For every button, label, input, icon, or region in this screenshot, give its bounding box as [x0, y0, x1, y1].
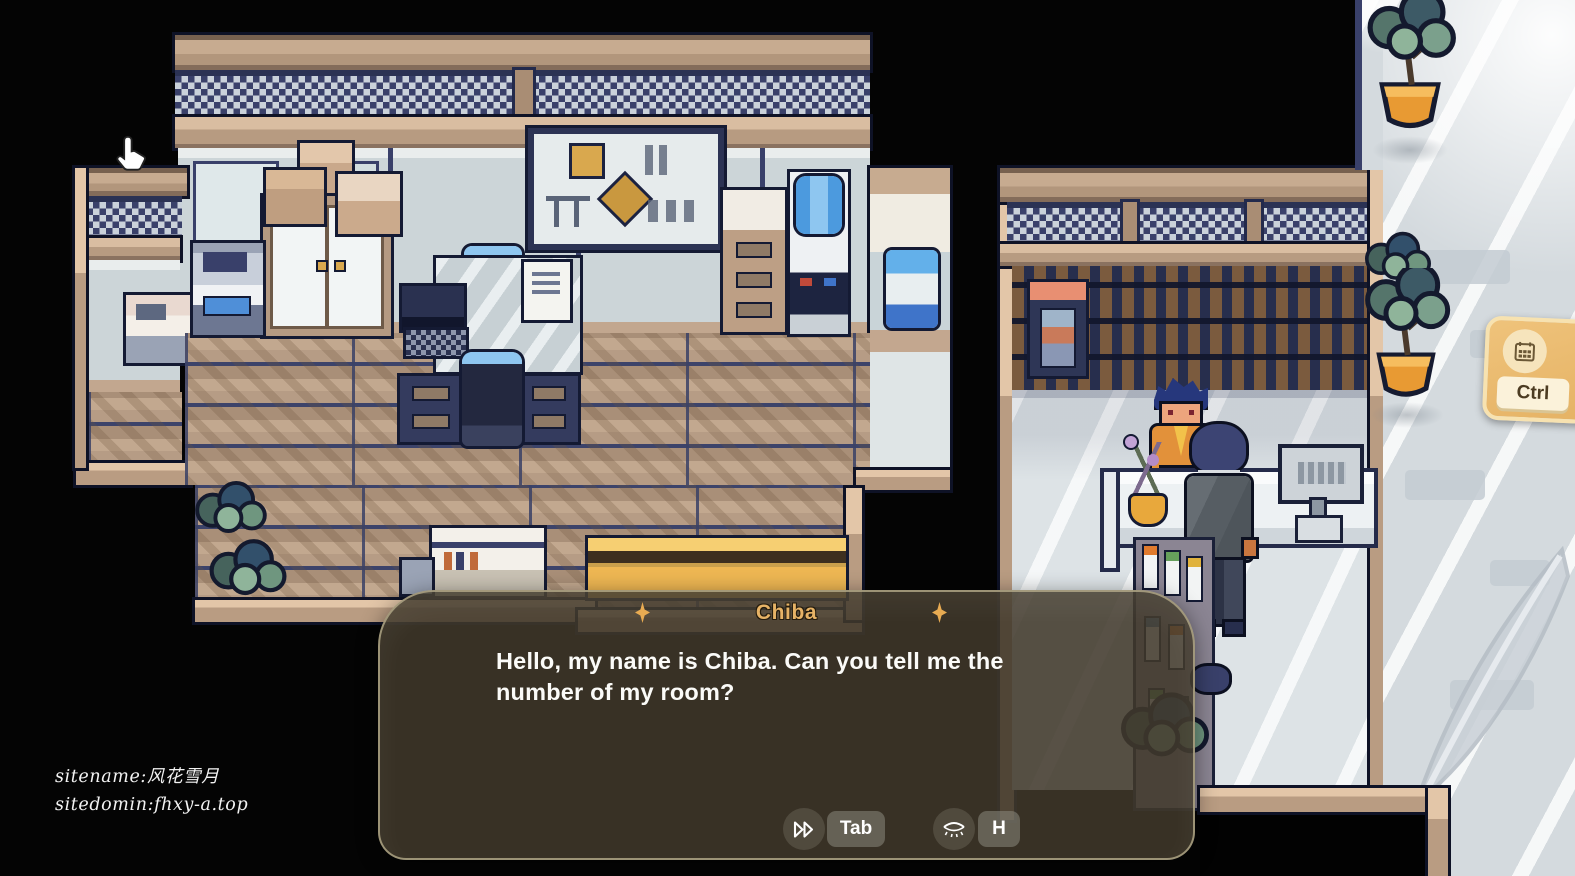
eye-closed-icon [941, 819, 967, 839]
skip-key-label: Tab [840, 818, 872, 840]
cooler-button-blue [824, 278, 836, 286]
office-top-beam [175, 35, 870, 70]
hide-key-label: H [992, 818, 1006, 840]
dialogue-text: Hello, my name is Chiba. Can you tell me… [496, 646, 1056, 708]
courtyard-plant [1358, 0, 1462, 134]
transom-post [1123, 202, 1137, 244]
hotkey-card[interactable]: Ctrl [1482, 315, 1575, 424]
calendar-icon [1502, 328, 1548, 374]
plant-reflection [1370, 402, 1444, 428]
drawer-handle [738, 304, 770, 316]
bottle [1166, 552, 1179, 594]
annex-left-edge [75, 168, 86, 468]
whiteboard-gold-square [572, 146, 602, 176]
drawer-handle [414, 416, 448, 427]
office-right-wall [870, 168, 950, 488]
courtyard-wall-band-vert [1428, 788, 1448, 876]
ctrl-key-label: Ctrl [1516, 382, 1550, 405]
annex-lintel [80, 238, 180, 260]
office-room [0, 0, 960, 660]
fax-screen [136, 304, 166, 320]
cardboard-box [338, 174, 400, 234]
hide-ui-button[interactable] [933, 808, 975, 850]
sideboard-books [444, 552, 484, 570]
annex-floor [88, 392, 182, 463]
water-bottle [796, 176, 842, 234]
skip-button[interactable] [783, 808, 825, 850]
office-plant [206, 528, 290, 602]
skip-key-button[interactable]: Tab [827, 811, 885, 847]
drawer-handle [738, 274, 770, 286]
flower-blossom [1125, 436, 1137, 448]
watermark-sitename: sitename:风花雪月 [55, 763, 219, 788]
annex-floor-edge [76, 463, 190, 485]
receptionist-eyes [1168, 410, 1194, 415]
courtyard-void [1200, 812, 1432, 876]
whiteboard-torii-doodle [546, 196, 590, 227]
floor-edge-right [856, 470, 950, 490]
copier-tray [205, 298, 249, 314]
blue-bin [886, 250, 938, 328]
floor-box [402, 560, 432, 594]
guest-hair [1192, 424, 1246, 472]
laptop [402, 286, 464, 330]
dialogue-box[interactable]: Chiba Hello, my name is Chiba. Can you t… [378, 590, 1195, 860]
whiteboard-doodles [645, 145, 697, 175]
flower-vase [1131, 496, 1165, 524]
counter-left-face [1104, 472, 1116, 568]
game-viewport[interactable]: Ctrl Chiba Hello, my name is Chiba. Can … [0, 0, 1575, 876]
speaker-name-row: Chiba [380, 600, 1193, 626]
annex-beam [75, 168, 187, 196]
register-base [1298, 518, 1340, 540]
drawer-handle [414, 388, 448, 399]
cabinet-handle [318, 262, 326, 270]
marble-leaf-ornament [1392, 540, 1572, 820]
desk-papers-lines [532, 272, 560, 294]
courtyard-wall-band [1200, 788, 1446, 812]
cooler-button-red [800, 278, 812, 286]
hand-pointer-cursor [116, 134, 150, 172]
receptionist-face [1162, 404, 1200, 426]
fast-forward-icon [792, 820, 816, 839]
office-lintel-beam [175, 117, 870, 148]
register-display [1298, 462, 1346, 484]
whiteboard-doodles [648, 200, 698, 222]
bottle [1144, 546, 1157, 588]
drawer-handle [534, 416, 564, 427]
lobby-lintel-beam [1000, 244, 1383, 266]
guest-hand [1244, 540, 1256, 556]
drawer-handle [738, 244, 770, 256]
desk-drawers-left [400, 376, 464, 442]
speaker-name: Chiba [756, 601, 817, 625]
drawer-handle [534, 388, 564, 399]
copier-screen [203, 252, 247, 272]
transom-post [515, 70, 533, 117]
bench [588, 538, 846, 598]
courtyard-plant [1356, 268, 1456, 402]
hide-key-button[interactable]: H [978, 811, 1020, 847]
poster-picture [1042, 310, 1074, 366]
guest-shoe [1225, 622, 1243, 634]
watermark-sitedomain: sitedomin:fhxy-a.top [55, 795, 248, 815]
lobby-top-beam [1000, 168, 1383, 202]
flower-stems [1130, 442, 1164, 500]
bottle [1188, 558, 1201, 600]
ctrl-keycap: Ctrl [1496, 376, 1569, 411]
plant-reflection [1372, 136, 1448, 164]
lobby-rock [1193, 666, 1229, 692]
keyboard [406, 330, 466, 356]
cabinet-handle [336, 262, 344, 270]
office-chair [462, 352, 522, 446]
desk-drawers-right [522, 376, 578, 442]
marble-patch [1405, 470, 1485, 500]
calendar-glyph [1512, 339, 1537, 364]
cardboard-box [266, 170, 324, 224]
transom-post [1247, 202, 1261, 244]
